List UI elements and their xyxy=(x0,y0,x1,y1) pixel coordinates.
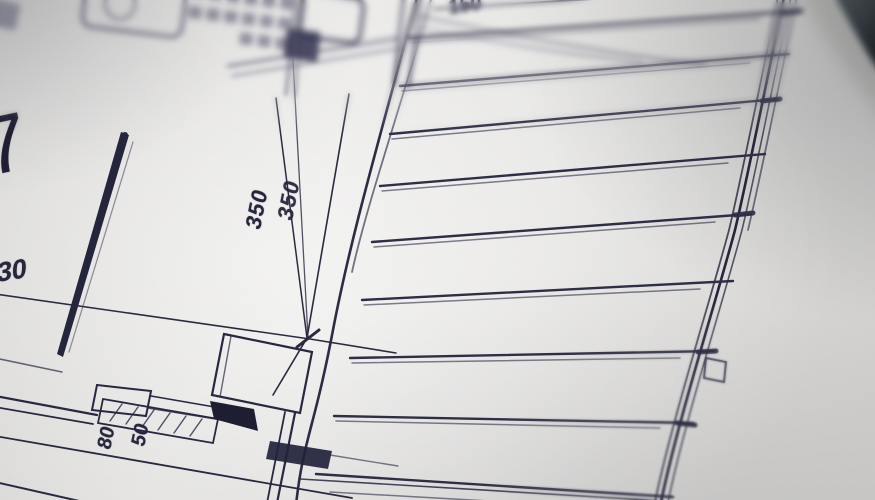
blueprint-photo: 7 350 350 30 150 80 50 xyxy=(0,0,875,500)
dimension-30-label: 30 xyxy=(0,253,28,289)
